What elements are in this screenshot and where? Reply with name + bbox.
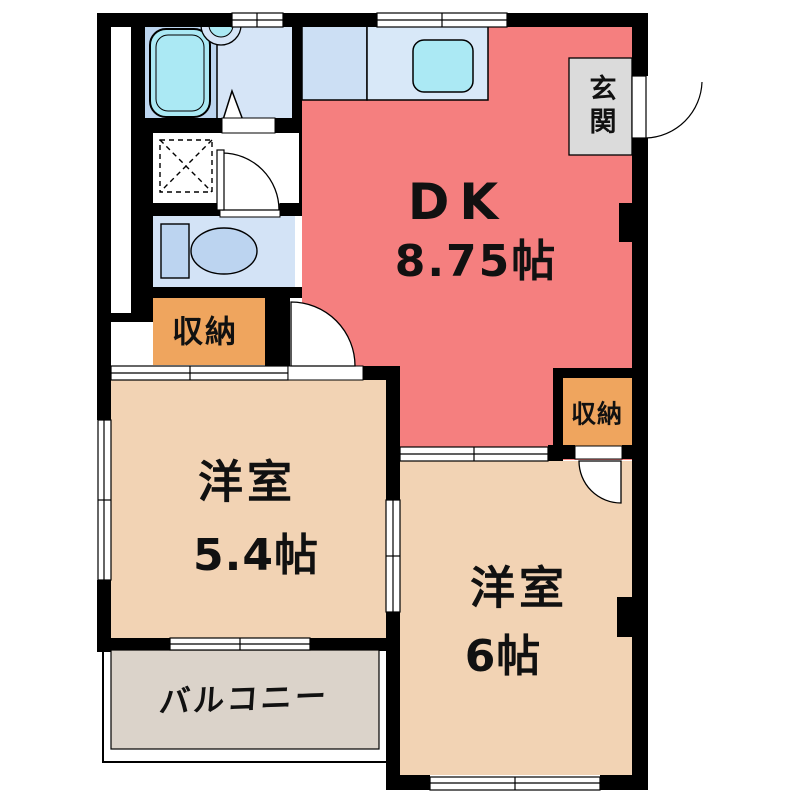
dk-label: DK	[408, 177, 508, 227]
bathtub-icon	[150, 29, 210, 117]
room2-label: 洋室	[470, 566, 568, 611]
balcony-window-icon	[170, 638, 310, 650]
kitchen-counter-icon	[302, 25, 367, 100]
closet-side-gap	[111, 322, 153, 366]
room2-window-icon	[430, 777, 600, 790]
dk-room2-sliding-door-icon	[400, 447, 548, 461]
room1-label: 洋室	[198, 460, 296, 505]
interior-window-between-rooms-icon	[386, 500, 400, 612]
floor-plan: DK 8.75帖 洋室 5.4帖 洋室 6帖 収納 収納 玄関 バルコニー	[0, 0, 800, 800]
window-kitchen-icon	[377, 13, 507, 27]
closet2-label: 収納	[571, 402, 623, 427]
toilet-icon	[161, 224, 189, 278]
closet2-door-threshold	[575, 446, 622, 459]
room-western-1	[111, 380, 386, 638]
room-western-2	[400, 461, 633, 775]
balcony-label: バルコニー	[158, 682, 330, 719]
closet1-label: 収納	[172, 318, 238, 349]
dk-door-threshold	[288, 366, 363, 380]
room1-size-label: 5.4帖	[193, 534, 319, 578]
room2-size-label: 6帖	[465, 635, 542, 679]
window-top-left-icon	[232, 13, 283, 27]
dk-size-label: 8.75帖	[395, 240, 558, 284]
floor-plan-drawing	[0, 0, 800, 800]
kitchen-sink-icon	[413, 40, 473, 92]
entrance-door-leaf	[632, 76, 646, 138]
bath-door-threshold	[222, 118, 275, 133]
closet1-sliding-door-icon	[111, 366, 288, 380]
window-left-wall-icon	[98, 420, 111, 580]
toilet-bowl	[191, 228, 257, 274]
entrance-label: 玄関	[587, 74, 614, 140]
washroom-door-leaf	[217, 150, 224, 210]
